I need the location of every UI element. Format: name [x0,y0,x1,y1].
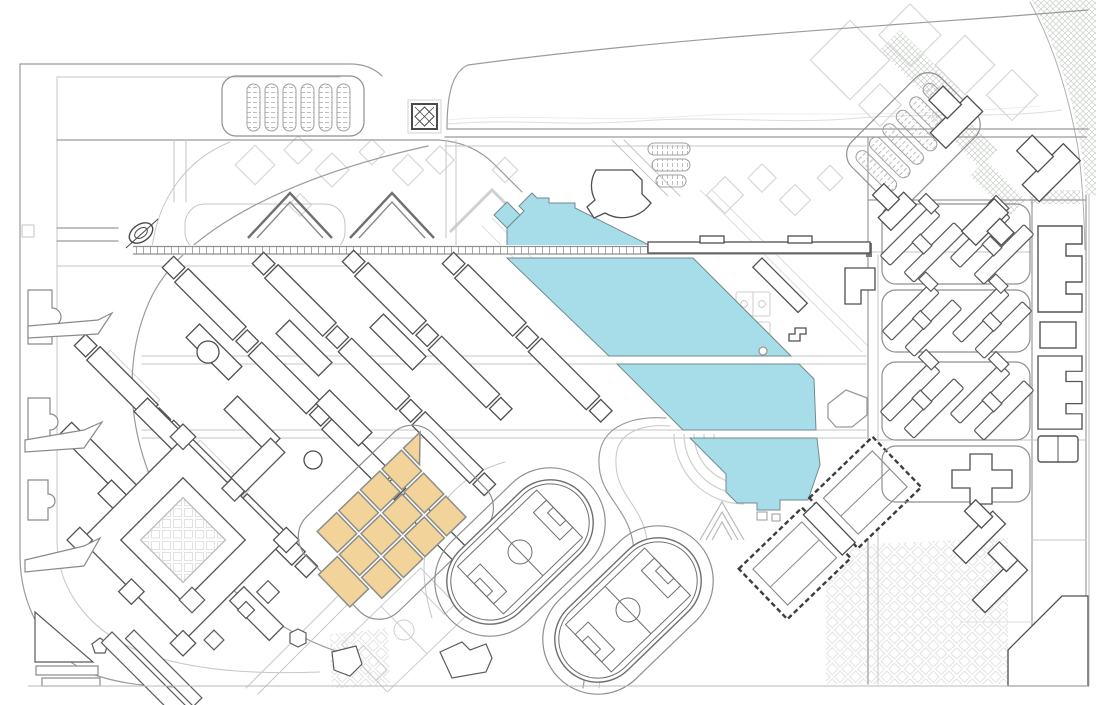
garden-plot-grid [826,538,1008,684]
top-band-road [447,10,1088,129]
chevron-buildings [248,193,434,238]
canal-segment-middle [617,364,816,430]
parking-lot-northwest [222,76,364,136]
cross-building [952,454,1012,504]
axis-sculpture [125,219,158,248]
site-plan-canvas [0,0,1096,705]
auditorium-building [587,170,651,218]
parking-rows-mid [648,143,690,187]
gate-pavilion [408,100,441,133]
east-edge-buildings [1038,226,1082,462]
canal-segment-tail [690,438,820,510]
corner-l-building [1008,596,1088,686]
canal-dock-marks [757,512,780,521]
tennis-court [1038,436,1078,462]
